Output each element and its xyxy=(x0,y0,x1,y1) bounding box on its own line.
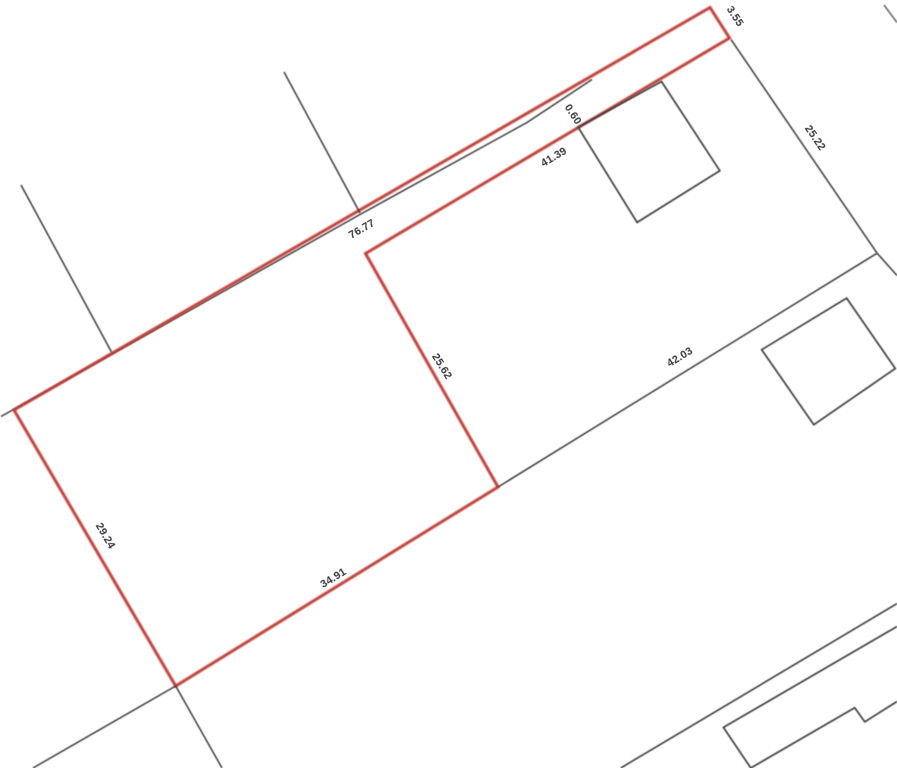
svg-text:42.03: 42.03 xyxy=(665,345,695,370)
svg-text:3.55: 3.55 xyxy=(724,4,746,29)
svg-text:25.62: 25.62 xyxy=(429,351,454,381)
svg-text:29.24: 29.24 xyxy=(93,521,118,551)
svg-text:76.77: 76.77 xyxy=(347,217,377,241)
svg-text:0.60: 0.60 xyxy=(562,102,584,127)
